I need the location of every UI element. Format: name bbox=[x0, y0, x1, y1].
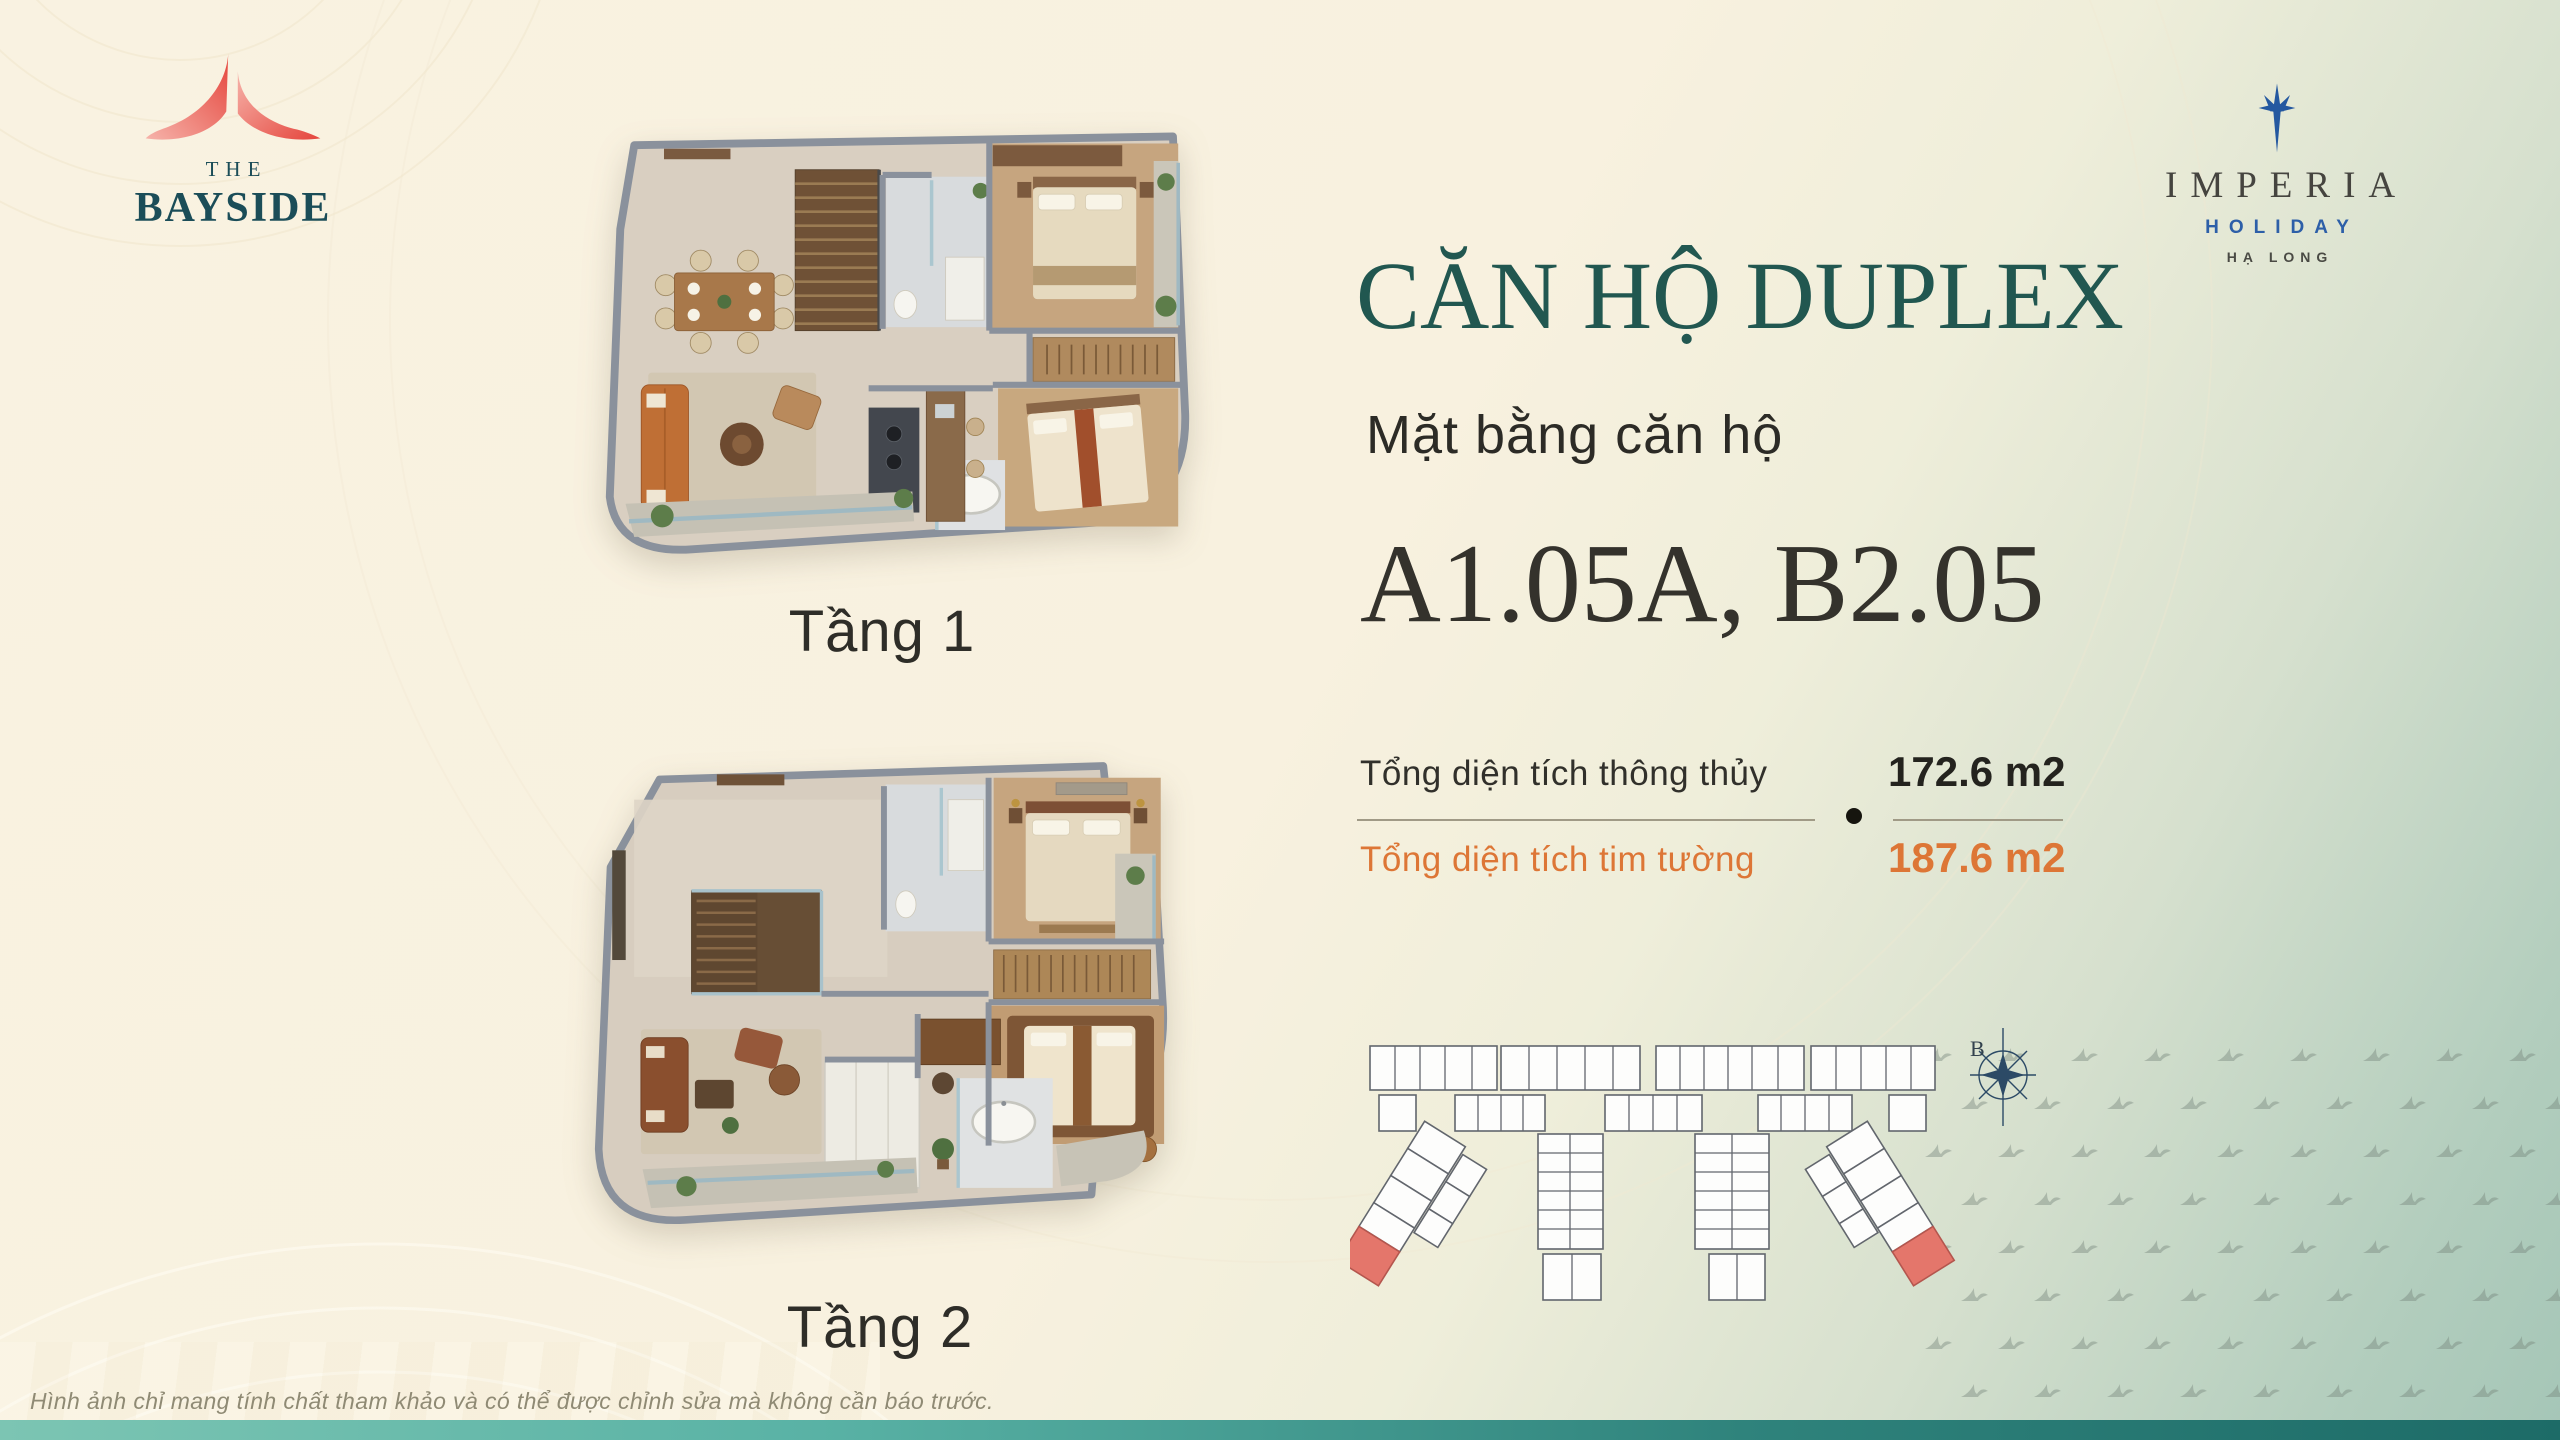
disclaimer-text: Hình ảnh chỉ mang tính chất tham khảo và… bbox=[30, 1388, 994, 1415]
divider-dot bbox=[1846, 808, 1862, 824]
page-subtitle: Mặt bằng căn hộ bbox=[1366, 404, 1783, 466]
bayside-logo: THE BAYSIDE bbox=[116, 52, 350, 232]
bayside-the-text: THE bbox=[116, 157, 350, 182]
brochure-page: THE BAYSIDE IMPERIA HOLIDAY HẠ LONG CĂN … bbox=[0, 0, 2560, 1440]
imperia-logo: IMPERIA HOLIDAY HẠ LONG bbox=[2152, 82, 2402, 265]
page-title: CĂN HỘ DUPLEX bbox=[1356, 240, 2116, 351]
unit-codes: A1.05A, B2.05 bbox=[1360, 520, 2044, 649]
net-area-label: Tổng diện tích thông thủy bbox=[1360, 754, 1768, 794]
gross-area-value: 187.6 m2 bbox=[1888, 834, 2065, 882]
divider-line-right bbox=[1893, 819, 2063, 821]
divider-line-left bbox=[1357, 819, 1815, 821]
net-area-value: 172.6 m2 bbox=[1888, 748, 2065, 796]
gross-area-label: Tổng diện tích tim tường bbox=[1360, 840, 1755, 880]
bayside-name-text: BAYSIDE bbox=[116, 184, 350, 232]
imperia-location-text: HẠ LONG bbox=[2152, 249, 2402, 265]
bayside-sail-icon bbox=[140, 52, 326, 148]
floor1-label: Tầng 1 bbox=[692, 598, 1072, 665]
siteplan-diagram: B bbox=[1350, 1022, 2060, 1312]
floor2-plan-image bbox=[516, 718, 1208, 1278]
north-star-icon bbox=[2222, 82, 2332, 154]
footer-bar bbox=[0, 1420, 2560, 1440]
imperia-holiday-text: HOLIDAY bbox=[2152, 217, 2402, 239]
compass-north-label: B bbox=[1970, 1036, 1985, 1061]
floor1-plan-image bbox=[550, 126, 1210, 572]
imperia-name-text: IMPERIA bbox=[2152, 164, 2402, 207]
floor2-label: Tầng 2 bbox=[690, 1294, 1070, 1361]
